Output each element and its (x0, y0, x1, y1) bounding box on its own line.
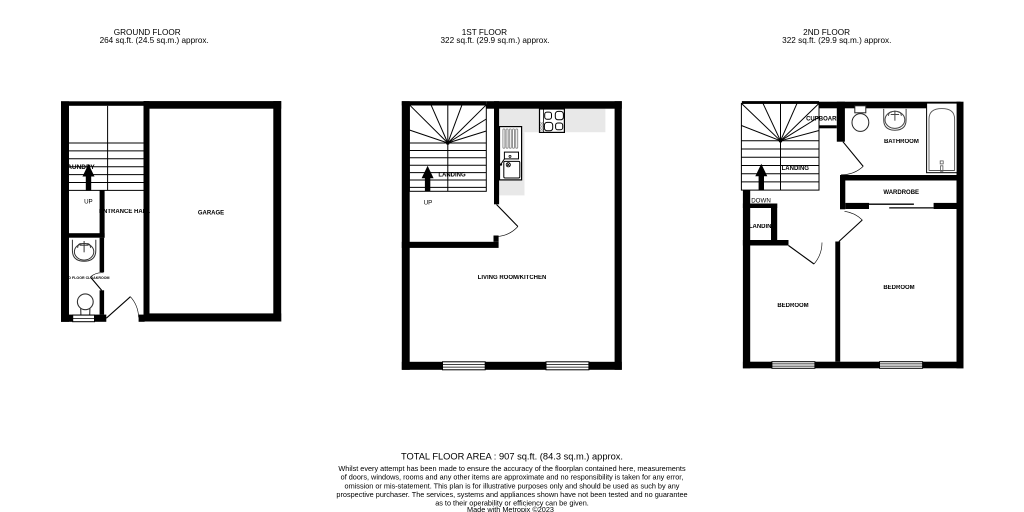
svg-text:TOTAL FLOOR AREA : 907 sq.ft.: TOTAL FLOOR AREA : 907 sq.ft. (84.3 sq.m… (401, 451, 623, 461)
svg-text:LANDING: LANDING (438, 173, 466, 179)
svg-text:BEDROOM: BEDROOM (883, 285, 914, 291)
svg-text:Made with Metropix ©2023: Made with Metropix ©2023 (467, 505, 554, 512)
svg-text:WARDROBE: WARDROBE (883, 190, 919, 196)
svg-text:322 sq.ft. (29.9 sq.m.) approx: 322 sq.ft. (29.9 sq.m.) approx. (440, 36, 549, 45)
svg-text:LIVING ROOM/KITCHEN: LIVING ROOM/KITCHEN (478, 275, 547, 281)
svg-text:264 sq.ft. (24.5 sq.m.) approx: 264 sq.ft. (24.5 sq.m.) approx. (100, 36, 209, 45)
svg-text:UP: UP (424, 200, 433, 207)
svg-text:322 sq.ft. (29.9 sq.m.) approx: 322 sq.ft. (29.9 sq.m.) approx. (782, 36, 891, 45)
svg-text:BEDROOM: BEDROOM (777, 303, 808, 309)
svg-text:DOWN: DOWN (751, 197, 771, 204)
svg-text:of doors, windows, rooms and a: of doors, windows, rooms and any other i… (341, 473, 684, 482)
svg-text:GARAGE: GARAGE (198, 210, 224, 216)
svg-text:omission or mis-statement. Thi: omission or mis-statement. This plan is … (345, 481, 680, 490)
svg-text:prospective purchaser. The ser: prospective purchaser. The services, sys… (336, 490, 687, 499)
svg-text:BATHROOM: BATHROOM (884, 139, 919, 145)
svg-text:Whilst every attempt has been: Whilst every attempt has been made to en… (338, 464, 686, 473)
svg-text:ENTRANCE HALL: ENTRANCE HALL (99, 209, 150, 215)
svg-text:UP: UP (84, 199, 93, 206)
svg-text:GND FLOOR CLOAKROOM: GND FLOOR CLOAKROOM (63, 276, 110, 280)
svg-text:LANDING: LANDING (782, 166, 810, 172)
svg-text:CUPBOARD: CUPBOARD (806, 116, 841, 122)
